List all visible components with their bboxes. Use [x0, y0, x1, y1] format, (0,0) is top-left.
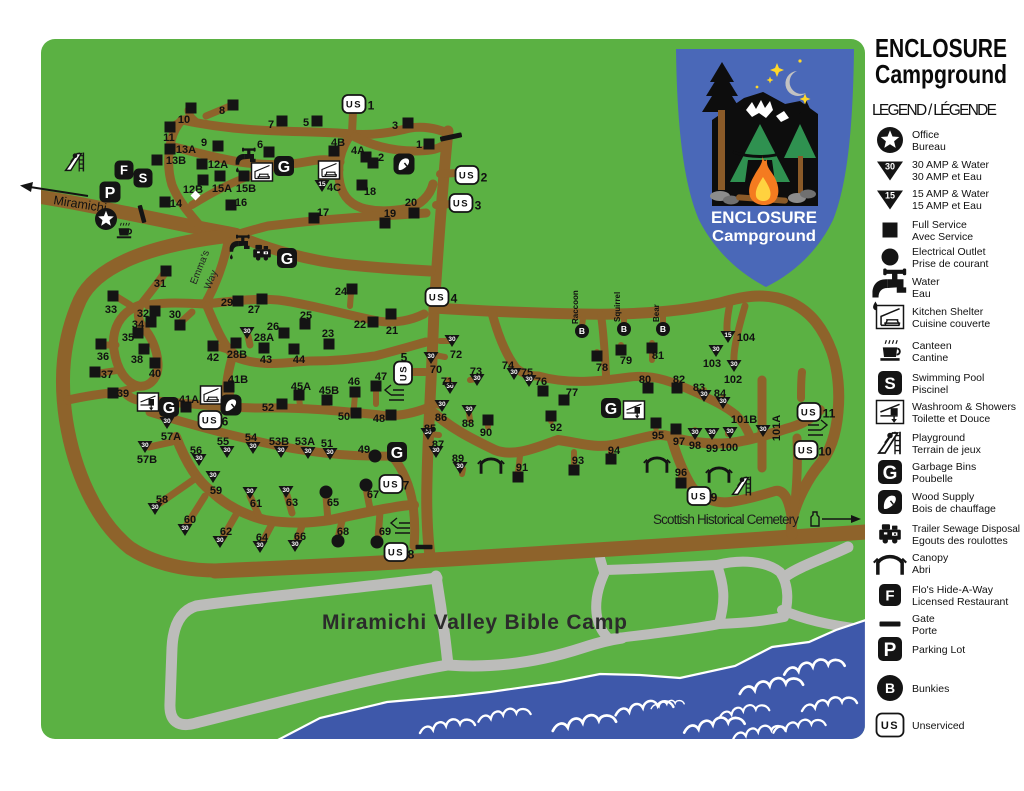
- svg-text:9: 9: [201, 137, 207, 149]
- svg-text:US: US: [388, 547, 404, 558]
- svg-text:53B: 53B: [269, 436, 289, 448]
- svg-text:Bois de chauffage: Bois de chauffage: [912, 503, 996, 515]
- svg-text:83: 83: [693, 382, 705, 394]
- svg-text:G: G: [391, 445, 403, 462]
- svg-text:30: 30: [448, 336, 456, 343]
- svg-text:76: 76: [535, 376, 547, 388]
- svg-text:90: 90: [480, 427, 492, 439]
- svg-text:97: 97: [673, 436, 685, 448]
- svg-text:US: US: [453, 198, 469, 209]
- svg-text:1: 1: [368, 98, 375, 112]
- svg-text:81: 81: [652, 350, 664, 362]
- svg-text:30 AMP & Water: 30 AMP & Water: [912, 159, 990, 171]
- svg-text:G: G: [281, 251, 293, 268]
- svg-text:41A: 41A: [179, 394, 199, 406]
- svg-text:2: 2: [378, 152, 384, 164]
- svg-text:US: US: [881, 720, 899, 732]
- svg-text:Prise de courant: Prise de courant: [912, 258, 989, 270]
- svg-text:40: 40: [149, 368, 161, 380]
- svg-text:71: 71: [441, 376, 453, 388]
- svg-text:30: 30: [246, 488, 254, 495]
- svg-text:30: 30: [169, 309, 181, 321]
- svg-text:88: 88: [462, 418, 474, 430]
- svg-text:Piscinel: Piscinel: [912, 384, 948, 396]
- svg-text:Avec Service: Avec Service: [912, 231, 973, 243]
- svg-text:US: US: [383, 479, 399, 490]
- svg-text:18: 18: [364, 186, 376, 198]
- svg-text:31: 31: [154, 278, 166, 290]
- svg-text:30: 30: [427, 353, 435, 360]
- svg-text:24: 24: [335, 286, 348, 298]
- svg-text:69: 69: [379, 526, 391, 538]
- svg-text:US: US: [459, 170, 475, 181]
- svg-text:Licensed Restaurant: Licensed Restaurant: [912, 596, 1008, 608]
- svg-text:Gate: Gate: [912, 613, 935, 625]
- svg-text:2: 2: [481, 170, 488, 184]
- svg-text:S: S: [139, 171, 148, 186]
- svg-text:20: 20: [405, 197, 417, 209]
- svg-text:79: 79: [620, 355, 632, 367]
- svg-text:Electrical Outlet: Electrical Outlet: [912, 246, 986, 258]
- svg-text:Garbage Bins: Garbage Bins: [912, 461, 976, 473]
- svg-text:4: 4: [451, 291, 458, 305]
- svg-text:Bunkies: Bunkies: [912, 683, 949, 695]
- svg-text:68: 68: [337, 526, 349, 538]
- svg-text:30: 30: [712, 346, 720, 353]
- svg-text:10: 10: [178, 114, 190, 126]
- svg-text:84: 84: [714, 388, 727, 400]
- svg-text:Bureau: Bureau: [912, 141, 946, 153]
- svg-text:85: 85: [424, 423, 436, 435]
- svg-text:B: B: [660, 324, 666, 334]
- svg-text:70: 70: [430, 364, 442, 376]
- svg-text:15B: 15B: [236, 183, 256, 195]
- svg-text:5: 5: [401, 350, 408, 364]
- svg-text:44: 44: [293, 354, 306, 366]
- svg-text:US: US: [691, 491, 707, 502]
- svg-text:49: 49: [358, 444, 370, 456]
- svg-text:74: 74: [502, 360, 515, 372]
- svg-text:Egouts des roulottes: Egouts des roulottes: [912, 535, 1008, 547]
- svg-text:30: 30: [885, 162, 895, 172]
- svg-text:Miramichi Valley Bible Camp: Miramichi Valley Bible Camp: [322, 611, 627, 634]
- svg-text:Canteen: Canteen: [912, 340, 952, 352]
- svg-text:US: US: [801, 407, 817, 418]
- svg-text:1: 1: [416, 139, 422, 151]
- svg-text:14: 14: [170, 198, 183, 210]
- svg-text:54: 54: [245, 432, 258, 444]
- svg-text:30: 30: [759, 426, 767, 433]
- svg-text:30: 30: [465, 406, 473, 413]
- svg-text:15 AMP et Eau: 15 AMP et Eau: [912, 200, 982, 212]
- svg-text:Office: Office: [912, 129, 939, 141]
- svg-text:US: US: [798, 445, 814, 456]
- svg-text:G: G: [163, 400, 175, 417]
- svg-text:Full Service: Full Service: [912, 219, 967, 231]
- svg-text:B: B: [579, 326, 585, 336]
- svg-text:37: 37: [101, 369, 113, 381]
- svg-text:13B: 13B: [166, 155, 186, 167]
- svg-text:15A: 15A: [212, 183, 232, 195]
- svg-text:30: 30: [243, 328, 251, 335]
- svg-text:61: 61: [250, 498, 262, 510]
- svg-text:93: 93: [572, 455, 584, 467]
- svg-text:3: 3: [475, 198, 482, 212]
- svg-text:G: G: [883, 463, 898, 484]
- svg-text:30: 30: [708, 429, 716, 436]
- svg-text:Scottish Historical Cemetery: Scottish Historical Cemetery: [653, 512, 799, 527]
- svg-text:75: 75: [521, 367, 533, 379]
- svg-text:Raccoon: Raccoon: [571, 290, 580, 324]
- svg-text:57B: 57B: [137, 454, 157, 466]
- svg-text:98: 98: [689, 440, 701, 452]
- svg-text:43: 43: [260, 354, 272, 366]
- svg-text:17: 17: [317, 207, 329, 219]
- svg-text:Squirrel: Squirrel: [613, 292, 622, 322]
- svg-text:103: 103: [703, 358, 721, 370]
- svg-text:36: 36: [97, 351, 109, 363]
- svg-text:19: 19: [384, 208, 396, 220]
- svg-text:US: US: [202, 415, 218, 426]
- svg-text:92: 92: [550, 422, 562, 434]
- svg-text:28A: 28A: [254, 332, 274, 344]
- svg-text:56: 56: [190, 445, 202, 457]
- svg-text:23: 23: [322, 328, 334, 340]
- svg-text:47: 47: [375, 371, 387, 383]
- svg-text:30 AMP et Eau: 30 AMP et Eau: [912, 171, 982, 183]
- svg-text:48: 48: [373, 413, 385, 425]
- svg-text:F: F: [885, 587, 894, 604]
- svg-text:65: 65: [327, 497, 339, 509]
- svg-text:8: 8: [219, 105, 225, 117]
- svg-text:Water: Water: [912, 276, 940, 288]
- svg-text:Eau: Eau: [912, 288, 931, 300]
- svg-text:100: 100: [720, 442, 738, 454]
- svg-text:Bear: Bear: [652, 304, 661, 322]
- svg-text:G: G: [278, 159, 290, 176]
- svg-text:Trailer Sewage Disposal: Trailer Sewage Disposal: [912, 523, 1020, 535]
- svg-text:Wood Supply: Wood Supply: [912, 491, 975, 503]
- svg-text:7: 7: [268, 119, 274, 131]
- svg-text:15: 15: [318, 181, 326, 188]
- svg-text:28B: 28B: [227, 349, 247, 361]
- svg-text:B: B: [885, 680, 895, 696]
- svg-text:96: 96: [675, 467, 687, 479]
- svg-text:12A: 12A: [208, 159, 228, 171]
- svg-text:51: 51: [321, 438, 333, 450]
- svg-text:45B: 45B: [319, 385, 339, 397]
- svg-text:38: 38: [131, 354, 143, 366]
- svg-text:82: 82: [673, 374, 685, 386]
- svg-text:Abri: Abri: [912, 564, 931, 576]
- svg-text:LEGEND / LÉGENDE: LEGEND / LÉGENDE: [872, 102, 997, 119]
- svg-text:Cuisine couverte: Cuisine couverte: [912, 318, 990, 330]
- svg-text:11: 11: [163, 132, 175, 144]
- svg-text:30: 30: [304, 448, 312, 455]
- svg-text:95: 95: [652, 430, 664, 442]
- svg-text:53A: 53A: [295, 436, 315, 448]
- svg-text:ENCLOSURE: ENCLOSURE: [711, 208, 817, 227]
- svg-text:Campground: Campground: [875, 59, 1007, 89]
- svg-text:45A: 45A: [291, 381, 311, 393]
- svg-text:101A: 101A: [771, 415, 783, 441]
- svg-text:39: 39: [117, 388, 129, 400]
- svg-text:55: 55: [217, 436, 229, 448]
- svg-text:46: 46: [348, 376, 360, 388]
- svg-text:41B: 41B: [228, 374, 248, 386]
- svg-text:6: 6: [222, 414, 229, 428]
- svg-text:Parking Lot: Parking Lot: [912, 644, 965, 656]
- svg-text:22: 22: [354, 319, 366, 331]
- svg-text:30: 30: [438, 401, 446, 408]
- svg-text:33: 33: [105, 304, 117, 316]
- svg-text:86: 86: [435, 412, 447, 424]
- svg-text:60: 60: [184, 514, 196, 526]
- svg-text:7: 7: [403, 478, 410, 492]
- svg-text:15 AMP & Water: 15 AMP & Water: [912, 188, 990, 200]
- svg-text:29: 29: [221, 297, 233, 309]
- svg-text:8: 8: [408, 547, 415, 561]
- svg-text:16: 16: [235, 197, 247, 209]
- svg-text:87: 87: [432, 439, 444, 451]
- svg-text:104: 104: [737, 332, 756, 344]
- svg-text:P: P: [884, 640, 897, 661]
- svg-text:21: 21: [386, 325, 398, 337]
- svg-text:99: 99: [706, 443, 718, 455]
- svg-text:58: 58: [156, 494, 168, 506]
- svg-text:63: 63: [286, 497, 298, 509]
- svg-text:B: B: [621, 324, 627, 334]
- svg-text:11: 11: [823, 406, 836, 420]
- svg-text:94: 94: [608, 445, 621, 457]
- svg-text:Poubelle: Poubelle: [912, 473, 953, 485]
- svg-text:30: 30: [726, 428, 734, 435]
- svg-text:Toilette et Douce: Toilette et Douce: [912, 413, 990, 425]
- svg-text:66: 66: [294, 531, 306, 543]
- svg-text:57A: 57A: [161, 431, 181, 443]
- svg-text:Cantine: Cantine: [912, 352, 948, 364]
- svg-text:42: 42: [207, 352, 219, 364]
- svg-text:30: 30: [163, 418, 171, 425]
- svg-text:5: 5: [303, 117, 309, 129]
- svg-text:4B: 4B: [331, 137, 345, 149]
- svg-text:10: 10: [818, 444, 832, 458]
- svg-text:64: 64: [256, 532, 269, 544]
- svg-text:Flo's Hide-A-Way: Flo's Hide-A-Way: [912, 584, 994, 596]
- svg-text:Terrain de jeux: Terrain de jeux: [912, 444, 982, 456]
- svg-text:80: 80: [639, 374, 651, 386]
- svg-text:Campground: Campground: [712, 228, 816, 245]
- svg-text:Unserviced: Unserviced: [912, 720, 965, 732]
- svg-text:15: 15: [885, 191, 895, 201]
- svg-text:6: 6: [257, 139, 263, 151]
- svg-text:77: 77: [566, 387, 578, 399]
- svg-text:67: 67: [367, 489, 379, 501]
- svg-text:25: 25: [300, 310, 312, 322]
- svg-text:4C: 4C: [327, 182, 341, 194]
- svg-text:30: 30: [141, 442, 149, 449]
- svg-text:30: 30: [209, 472, 217, 479]
- svg-text:35: 35: [122, 332, 134, 344]
- svg-text:F: F: [120, 163, 128, 178]
- svg-text:62: 62: [220, 526, 232, 538]
- svg-text:59: 59: [210, 485, 222, 497]
- svg-text:P: P: [105, 185, 116, 202]
- svg-text:73: 73: [470, 366, 482, 378]
- svg-text:102: 102: [724, 374, 742, 386]
- svg-text:Washroom & Showers: Washroom & Showers: [912, 401, 1016, 413]
- svg-text:78: 78: [596, 362, 608, 374]
- svg-text:52: 52: [262, 402, 274, 414]
- svg-text:US: US: [346, 99, 362, 110]
- svg-text:S: S: [884, 374, 895, 393]
- svg-text:30: 30: [691, 429, 699, 436]
- svg-text:91: 91: [516, 462, 528, 474]
- svg-text:4A: 4A: [351, 145, 365, 157]
- svg-text:US: US: [429, 292, 445, 303]
- svg-text:Swimming Pool: Swimming Pool: [912, 372, 984, 384]
- svg-text:101B: 101B: [731, 414, 757, 426]
- svg-text:30: 30: [282, 487, 290, 494]
- svg-text:30: 30: [730, 361, 738, 368]
- svg-text:50: 50: [338, 411, 350, 423]
- svg-text:US: US: [398, 365, 409, 381]
- svg-text:15: 15: [724, 332, 732, 339]
- svg-text:89: 89: [452, 453, 464, 465]
- svg-text:Canopy: Canopy: [912, 552, 949, 564]
- svg-text:27: 27: [248, 304, 260, 316]
- svg-text:3: 3: [392, 120, 398, 132]
- svg-text:G: G: [605, 401, 617, 418]
- svg-text:9: 9: [711, 490, 718, 504]
- svg-text:Porte: Porte: [912, 625, 937, 637]
- svg-text:Playground: Playground: [912, 432, 965, 444]
- svg-text:Kitchen Shelter: Kitchen Shelter: [912, 306, 984, 318]
- svg-text:72: 72: [450, 349, 462, 361]
